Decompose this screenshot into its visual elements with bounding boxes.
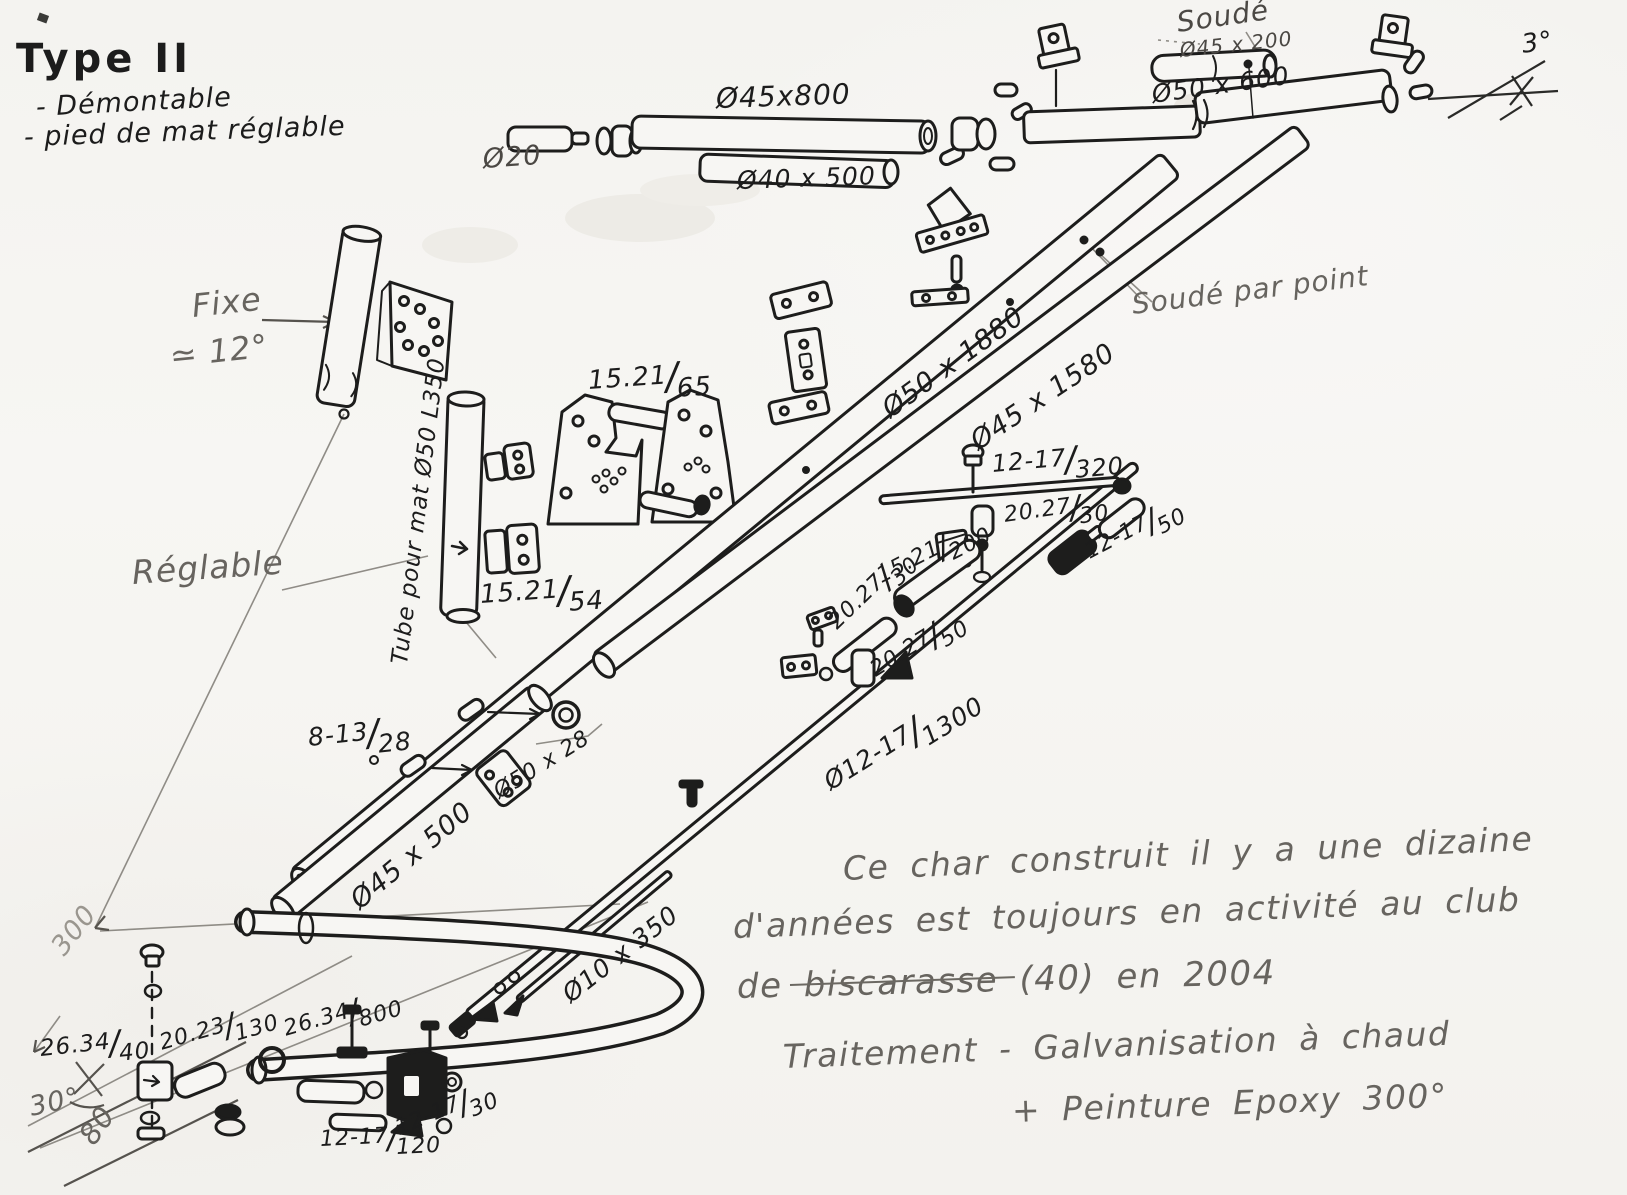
part-label-15-21-54: 15.21/54 xyxy=(479,565,605,613)
pivot-bracket xyxy=(906,182,988,306)
dim-label-dia45x800: Ø45x800 xyxy=(715,79,851,113)
part-label-15-21-65: 15.21/65 xyxy=(587,351,713,399)
dim-label-3deg: 3° xyxy=(1520,28,1555,59)
dim-label-dia20: Ø20 xyxy=(482,142,542,174)
dim-label-dia40x500: Ø40 x 500 xyxy=(737,163,877,194)
triangular-plates xyxy=(548,390,736,524)
drilled-plates xyxy=(768,281,832,424)
scanned-technical-sheet: Type II - Démontable - pied de mat régla… xyxy=(0,0,1627,1195)
angle-3deg-dimension xyxy=(1428,61,1558,120)
page-title: Type II xyxy=(16,38,192,80)
label-fixe: Fixe xyxy=(190,283,263,324)
